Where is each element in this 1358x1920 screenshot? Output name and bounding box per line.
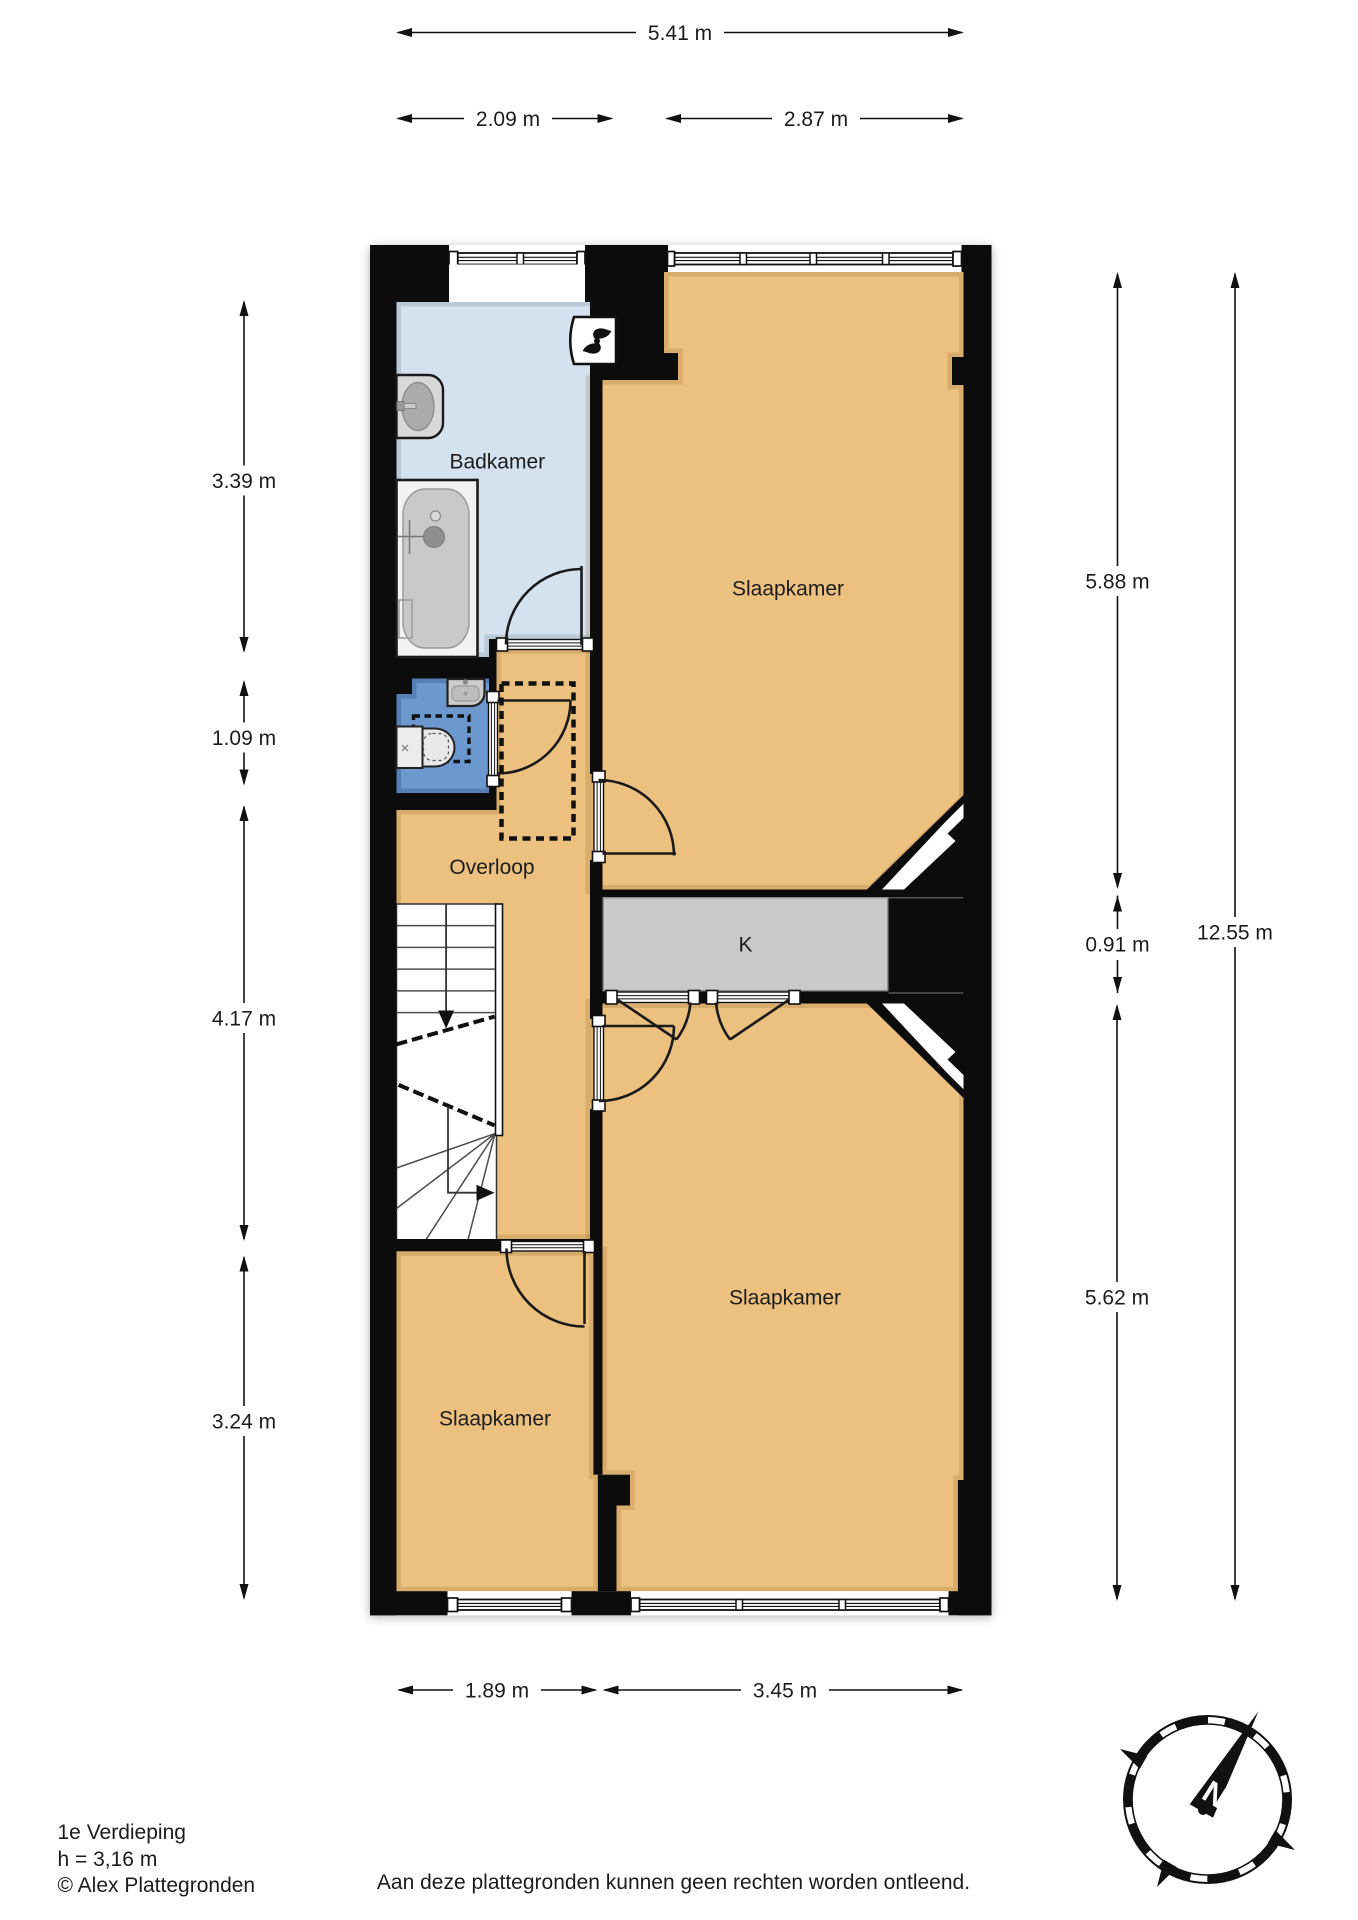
svg-text:Aan deze plattegronden kunnen: Aan deze plattegronden kunnen geen recht…	[377, 1871, 970, 1894]
svg-text:h = 3,16 m: h = 3,16 m	[58, 1848, 158, 1871]
svg-text:K: K	[738, 934, 752, 957]
svg-text:12.55 m: 12.55 m	[1197, 922, 1273, 945]
svg-text:5.88 m: 5.88 m	[1085, 571, 1149, 594]
svg-text:Slaapkamer: Slaapkamer	[439, 1408, 551, 1431]
svg-text:Slaapkamer: Slaapkamer	[732, 578, 844, 601]
svg-text:1e Verdieping: 1e Verdieping	[58, 1821, 186, 1844]
svg-text:1.09 m: 1.09 m	[212, 727, 276, 750]
svg-text:0.91 m: 0.91 m	[1085, 934, 1149, 957]
svg-text:2.87 m: 2.87 m	[784, 108, 848, 131]
svg-text:3.24 m: 3.24 m	[212, 1411, 276, 1434]
svg-text:2.09 m: 2.09 m	[476, 108, 540, 131]
svg-text:3.39 m: 3.39 m	[212, 470, 276, 493]
svg-text:5.41 m: 5.41 m	[648, 22, 712, 45]
svg-text:4.17 m: 4.17 m	[212, 1008, 276, 1031]
svg-text:1.89 m: 1.89 m	[465, 1680, 529, 1703]
svg-text:Overloop: Overloop	[449, 856, 534, 879]
svg-text:© Alex Plattegronden: © Alex Plattegronden	[58, 1874, 256, 1897]
svg-text:5.62 m: 5.62 m	[1085, 1287, 1149, 1310]
svg-text:Badkamer: Badkamer	[449, 451, 545, 474]
svg-text:Slaapkamer: Slaapkamer	[729, 1287, 841, 1310]
svg-text:3.45 m: 3.45 m	[753, 1680, 817, 1703]
